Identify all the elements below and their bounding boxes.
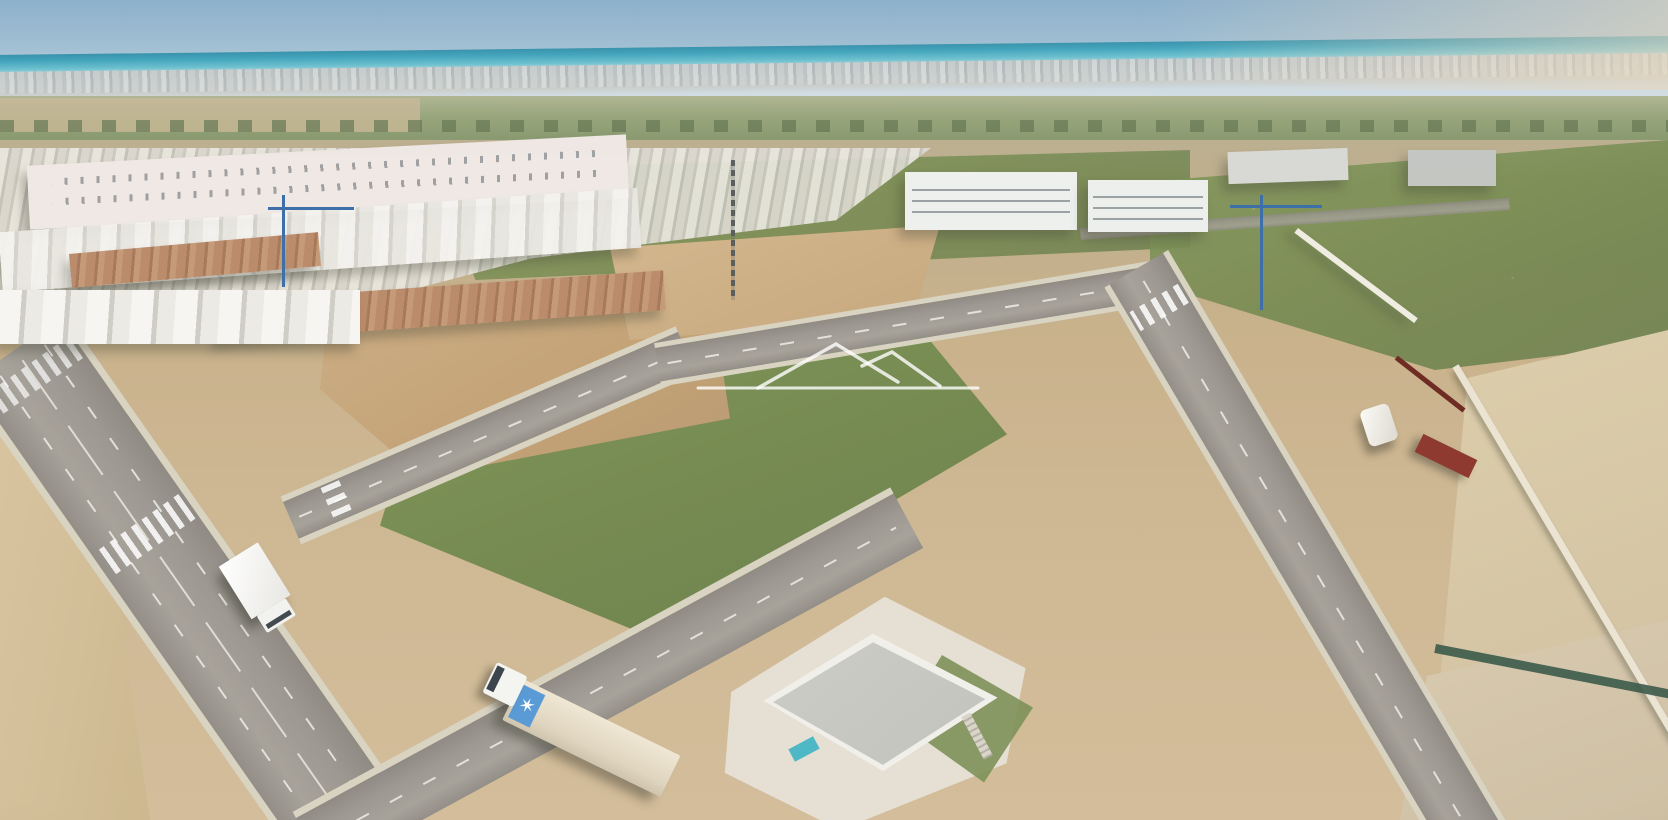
balcony-bands — [1093, 187, 1203, 225]
crane-jib — [268, 207, 354, 210]
warehouse-top-right-2 — [1408, 150, 1496, 186]
far-treeline — [0, 120, 1668, 132]
white-villas-row-left — [0, 290, 360, 344]
zebra-crossing — [95, 494, 196, 577]
crane-mast — [1260, 195, 1263, 310]
watermark — [640, 330, 1040, 480]
zebra-crossing — [321, 480, 354, 521]
apartment-block-center-1 — [905, 172, 1077, 230]
apartment-block-center-2 — [1088, 180, 1208, 232]
aerial-photo: ✶ — [0, 0, 1668, 820]
balcony-bands — [912, 180, 1070, 222]
warm-light-overlay — [968, 0, 1668, 90]
roof-logo-icon — [640, 330, 1040, 394]
power-pylon — [731, 160, 735, 300]
zebra-crossing — [1130, 284, 1189, 331]
warehouse-top-right-1 — [1227, 148, 1348, 184]
crane-jib — [1230, 205, 1322, 208]
